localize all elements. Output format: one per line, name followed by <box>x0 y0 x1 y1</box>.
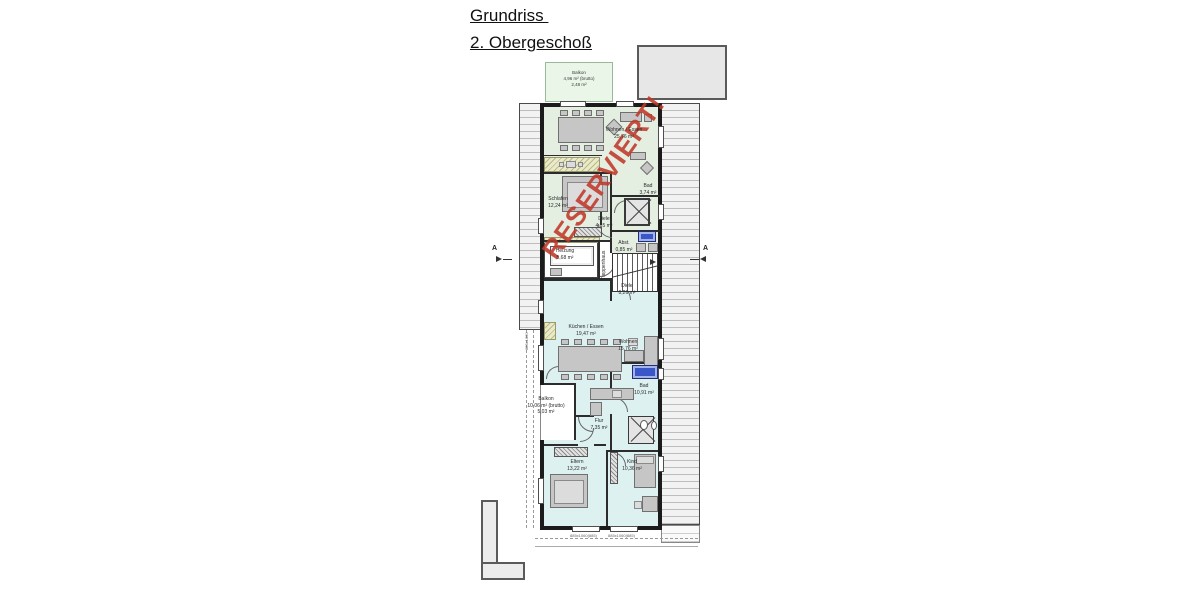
window-wohnen-og <box>658 126 664 148</box>
window-eltern <box>538 478 544 504</box>
chair-icon <box>561 339 569 345</box>
room-label-heizung: Heizung5,68 m² <box>548 248 582 261</box>
window-kueche <box>538 345 544 371</box>
chair-icon <box>574 374 582 380</box>
section-marker-right: A <box>703 245 708 252</box>
washing-machine-icon <box>638 231 656 242</box>
section-marker-right-line <box>690 259 699 260</box>
room-label-balkon-lower: Balkon10,06 m² (brutto)5,03 m² <box>520 396 572 416</box>
stair-structure-foot <box>481 562 525 580</box>
chair-icon <box>574 339 582 345</box>
bed-eltern-sheet <box>554 480 584 504</box>
balkon-threshold-hatch <box>544 322 556 340</box>
wall-eltern-top-a <box>544 444 578 446</box>
chair-icon <box>613 374 621 380</box>
window-schlafen <box>538 218 544 234</box>
room-label-treppenhaus: Treppenhaus <box>601 243 608 287</box>
chair-icon <box>584 110 592 116</box>
room-label-bad-og: Bad3,74 m² <box>638 183 658 196</box>
loggia-table-icon <box>566 161 576 168</box>
roof-band-right <box>661 103 700 525</box>
page-subtitle: 2. Obergeschoß <box>470 33 592 53</box>
window-bad-og <box>658 204 664 220</box>
room-label-wohnen-essen-og: Wohnen / Essen25,76 m² <box>604 127 644 140</box>
window-bottom-right <box>610 526 638 532</box>
eave-dashed-line <box>526 330 527 528</box>
roof-eave-bottom-right <box>661 525 700 543</box>
room-label-wohnen-lower: Wohnen15,76 m² <box>614 339 642 352</box>
room-label-schlafen: Schlafen12,24 m² <box>545 196 571 209</box>
window-wohnen-lower <box>658 338 664 360</box>
room-label-flur: Flur7,35 m² <box>588 418 610 431</box>
wall-bad-lower-left-b <box>610 414 612 450</box>
window-left-mid <box>538 300 544 314</box>
outer-wall-bottom <box>540 526 662 530</box>
section-marker-left: A <box>492 245 497 252</box>
wall-balkon-right <box>574 383 576 440</box>
room-label-diele-lower: Diele8,26 m² <box>614 283 640 296</box>
toilet-icon <box>640 420 648 430</box>
wall-eltern-kind <box>606 450 608 526</box>
room-label-bad-lower: Bad10,91 m² <box>632 383 656 396</box>
chair-icon <box>584 145 592 151</box>
room-label-abstell: Abst.0,85 m² <box>612 240 636 253</box>
window-bottom-left <box>572 526 600 532</box>
roof-band-left <box>519 103 541 330</box>
loggia-chair-icon <box>559 162 564 167</box>
desk-chair-icon <box>634 501 642 509</box>
chair-icon <box>587 339 595 345</box>
stair-direction-arrow <box>650 259 656 265</box>
section-marker-left-line <box>503 259 512 260</box>
eave-outline-bottom <box>535 546 698 547</box>
desk-kind-icon <box>642 496 658 512</box>
balcony-top-label: Balkon 4,96 m² (brutto) 2,48 m² <box>545 70 613 88</box>
chair-icon <box>560 145 568 151</box>
wardrobe-kind-icon <box>610 452 618 484</box>
bathtub-icon <box>632 365 658 379</box>
loggia-chair-icon <box>578 162 583 167</box>
wall-loggia-top <box>544 155 602 156</box>
balcony-door-top <box>560 101 586 107</box>
wall-balkon-top <box>544 383 576 385</box>
section-marker-right-arrow <box>700 256 706 262</box>
chair-icon <box>561 374 569 380</box>
room-label-kind: Kind10,36 m² <box>620 459 644 472</box>
chair-icon <box>600 374 608 380</box>
appliance-icon <box>648 243 658 252</box>
chair-icon <box>572 145 580 151</box>
chair-icon <box>587 374 595 380</box>
page-title: Grundriss <box>470 6 548 26</box>
chair-icon <box>560 110 568 116</box>
appliance-icon <box>636 243 646 252</box>
sink-icon <box>651 421 657 430</box>
chair-icon <box>596 110 604 116</box>
eave-dashed-line-bottom <box>535 538 698 539</box>
window-bad-lower <box>658 368 664 380</box>
wardrobe-eltern-icon <box>554 447 588 457</box>
section-marker-left-arrow <box>496 256 502 262</box>
dining-table-lower-icon <box>558 346 622 372</box>
eave-dashed-line <box>533 330 534 528</box>
room-label-kueche: Küchen / Essen19,47 m² <box>566 324 606 337</box>
wall-eltern-top-b <box>594 444 606 446</box>
room-label-eltern: Eltern13,22 m² <box>564 459 590 472</box>
floor-plan: Grundriss 2. Obergeschoß Balkon 4,96 m² … <box>0 0 1200 600</box>
chair-icon <box>572 110 580 116</box>
chair-icon <box>600 339 608 345</box>
kitchen-counter-icon <box>590 402 602 416</box>
cooktop-icon <box>612 390 622 398</box>
dimension-text: 885x1060(885) <box>608 533 635 538</box>
room-label-diele-og: Diele4,85 m² <box>594 216 614 229</box>
dining-table-upper-icon <box>558 117 604 143</box>
dimension-text: 885x1060(885) <box>570 533 597 538</box>
window-top-right <box>616 101 634 107</box>
dimension-text-side: 885x1060 <box>524 332 529 350</box>
window-kind <box>658 456 664 472</box>
